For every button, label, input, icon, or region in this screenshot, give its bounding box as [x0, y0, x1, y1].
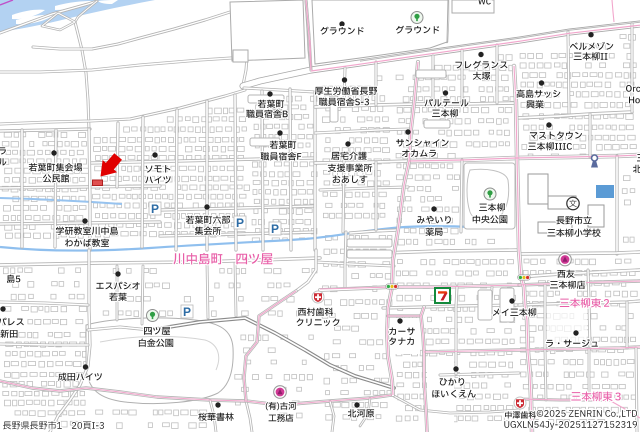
svg-text:P: P	[236, 216, 244, 230]
svg-text:P: P	[271, 222, 279, 236]
svg-text:P: P	[183, 305, 191, 319]
svg-text:P: P	[151, 202, 159, 216]
